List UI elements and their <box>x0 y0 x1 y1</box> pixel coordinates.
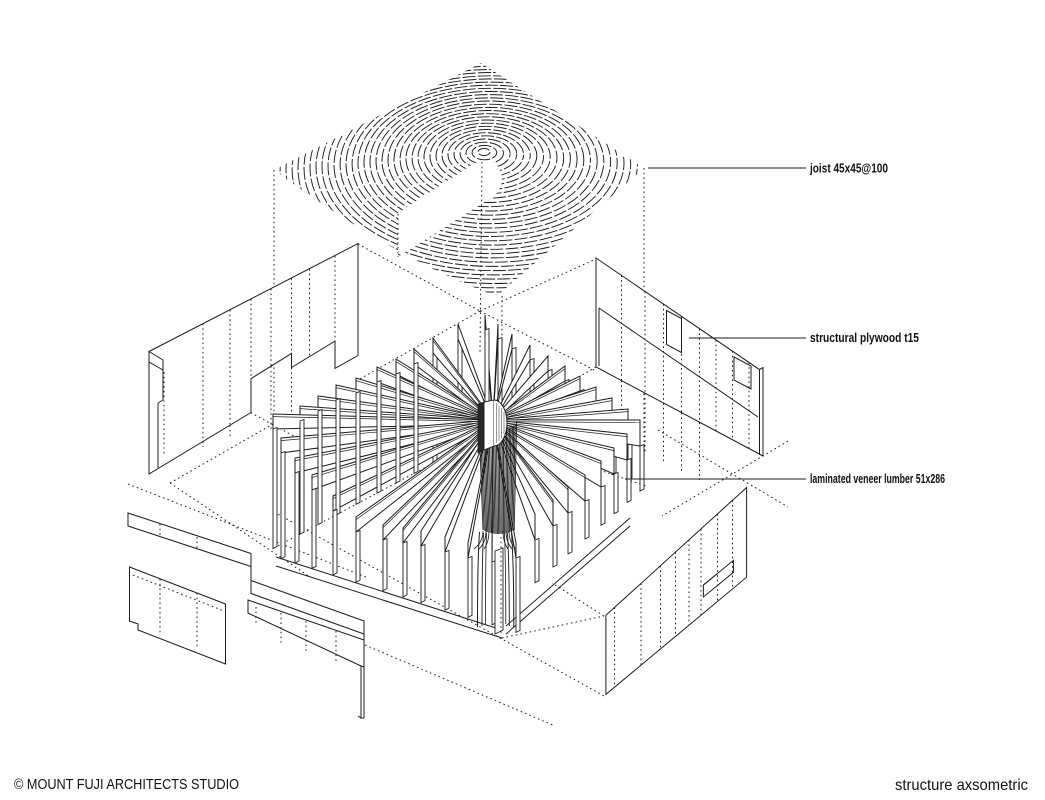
svg-text:laminated veneer lumber 51x286: laminated veneer lumber 51x286 <box>810 471 945 486</box>
svg-text:structural plywood t15: structural plywood t15 <box>810 330 919 345</box>
svg-text:structure axsometric: structure axsometric <box>895 777 1028 794</box>
svg-text:© MOUNT FUJI ARCHITECTS STUDIO: © MOUNT FUJI ARCHITECTS STUDIO <box>14 777 239 793</box>
svg-text:joist 45x45@100: joist 45x45@100 <box>809 161 888 176</box>
